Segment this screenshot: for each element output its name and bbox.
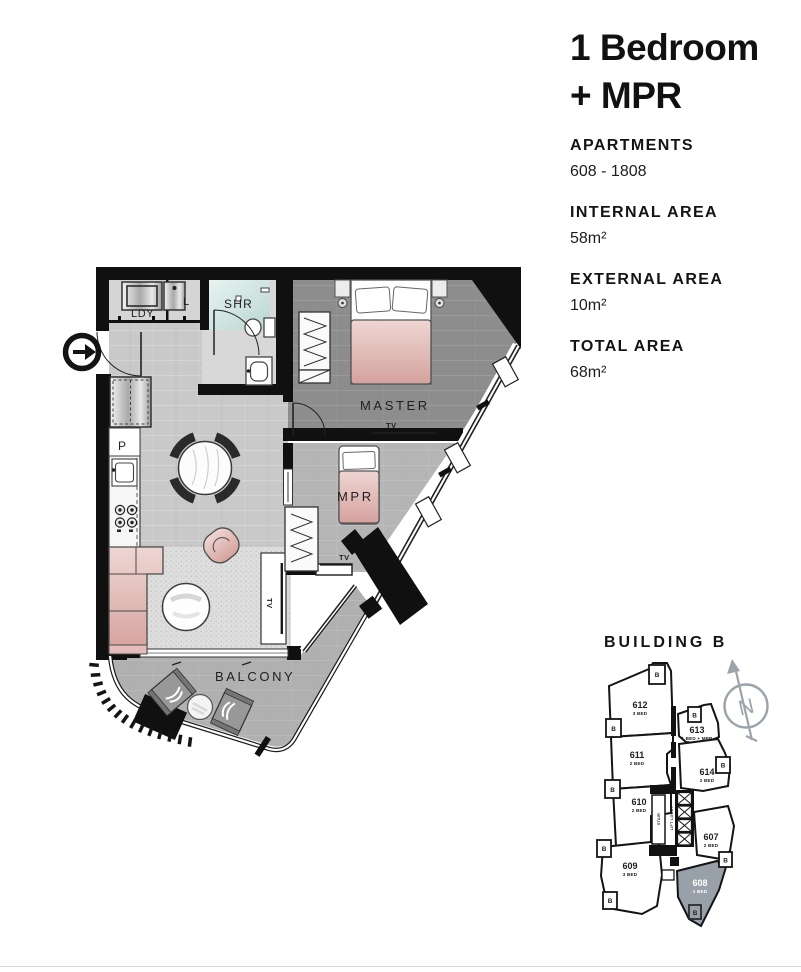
lift-lobby-label: LIFT LOBBY xyxy=(670,805,674,830)
svg-text:B: B xyxy=(721,763,726,770)
linen-label: L xyxy=(183,296,190,308)
svg-text:B: B xyxy=(692,713,697,720)
svg-text:B: B xyxy=(693,910,698,917)
sink-icon xyxy=(112,459,137,486)
spec-total-area: TOTAL AREA 68m² xyxy=(570,337,795,382)
svg-text:B: B xyxy=(655,672,660,679)
floorplan: LDY L SHR P xyxy=(55,250,545,810)
svg-text:610: 610 xyxy=(631,797,646,807)
master-wardrobe xyxy=(299,312,330,383)
spec-external-area: EXTERNAL AREA 10m² xyxy=(570,270,795,315)
tv-label: TV xyxy=(386,421,397,430)
tv-label: TV xyxy=(339,553,350,562)
svg-text:2 BED: 2 BED xyxy=(632,808,647,813)
mpr-window xyxy=(316,564,352,575)
svg-text:607: 607 xyxy=(703,832,718,842)
shower-label: SHR xyxy=(224,297,253,311)
dining xyxy=(174,437,236,499)
svg-text:B: B xyxy=(611,726,616,733)
info-panel: 1 Bedroom + MPR APARTMENTS 608 - 1808 IN… xyxy=(570,24,795,404)
svg-text:612: 612 xyxy=(632,700,647,710)
compass-n-label: N xyxy=(736,695,756,721)
title-line1: 1 Bedroom xyxy=(570,27,759,68)
svg-text:1 BED + MPR: 1 BED + MPR xyxy=(681,736,713,741)
mpr-label: MPR xyxy=(337,489,374,504)
tv-cabinet: TV xyxy=(261,553,286,644)
balcony-label: BALCONY xyxy=(215,669,295,684)
spec-apartments: APARTMENTS 608 - 1808 xyxy=(570,136,795,181)
svg-text:2 BED: 2 BED xyxy=(630,761,645,766)
svg-text:3 BED: 3 BED xyxy=(633,711,648,716)
svg-text:2 BED: 2 BED xyxy=(700,778,715,783)
bedside-table xyxy=(335,280,350,297)
building-key: B B B B B B B B B STAIR xyxy=(595,630,801,965)
svg-text:2 BED: 2 BED xyxy=(704,843,719,848)
spec-value: 58m² xyxy=(570,229,795,248)
spec-label: INTERNAL AREA xyxy=(570,203,795,222)
page-divider xyxy=(0,966,801,967)
pantry-label: P xyxy=(118,439,127,453)
svg-text:609: 609 xyxy=(622,861,637,871)
svg-text:B: B xyxy=(723,858,728,865)
spec-value: 10m² xyxy=(570,296,795,315)
laundry-label: LDY xyxy=(131,308,154,320)
spec-internal-area: INTERNAL AREA 58m² xyxy=(570,203,795,248)
svg-text:B: B xyxy=(610,787,615,794)
title-line2: + MPR xyxy=(570,75,682,116)
svg-text:613: 613 xyxy=(689,725,704,735)
svg-text:614: 614 xyxy=(699,767,714,777)
svg-text:B: B xyxy=(602,846,607,853)
stair-label: STAIR xyxy=(657,813,661,825)
vanity-icon xyxy=(246,357,272,385)
svg-text:1 BED: 1 BED xyxy=(693,889,708,894)
plan-title: 1 Bedroom + MPR xyxy=(570,24,795,120)
master-bed xyxy=(351,280,431,384)
tv-label: TV xyxy=(265,598,274,609)
svg-text:3 BED: 3 BED xyxy=(623,872,638,877)
mpr-bed xyxy=(339,446,379,524)
spec-label: TOTAL AREA xyxy=(570,337,795,356)
spec-label: EXTERNAL AREA xyxy=(570,270,795,289)
mpr-wardrobe xyxy=(285,507,318,571)
master-label: MASTER xyxy=(360,398,430,413)
spec-label: APARTMENTS xyxy=(570,136,795,155)
coffee-table xyxy=(163,584,210,631)
spec-value: 68m² xyxy=(570,363,795,382)
svg-text:608: 608 xyxy=(692,878,707,888)
entry-arrow-icon xyxy=(66,336,99,369)
svg-text:611: 611 xyxy=(630,750,645,760)
mpr-slider xyxy=(284,469,293,505)
svg-text:B: B xyxy=(608,898,613,905)
north-compass-icon: N xyxy=(725,659,768,741)
bedside-table xyxy=(432,280,447,297)
spec-value: 608 - 1808 xyxy=(570,162,795,181)
